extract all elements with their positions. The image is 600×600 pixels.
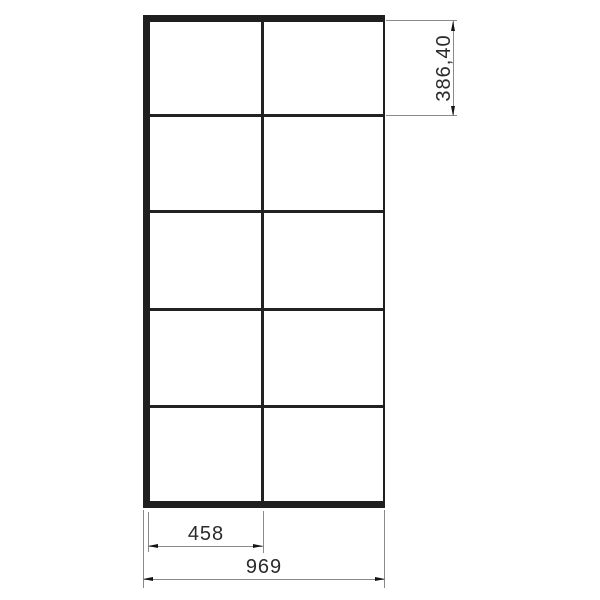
vertical-mullion — [261, 22, 264, 501]
cell-height-arrow-up-icon — [451, 21, 455, 31]
total-width-arrow-right-icon — [375, 577, 385, 581]
total-width-arrow-left-icon — [143, 577, 153, 581]
cell-height-extension-line-bottom — [386, 115, 457, 116]
horizontal-mullion-2 — [150, 210, 383, 213]
total-width-dimension-line — [143, 579, 385, 580]
horizontal-mullion-3 — [150, 308, 383, 311]
cell-height-extension-line-top — [386, 20, 457, 21]
drawing-canvas: 386,40 458 969 — [0, 0, 600, 600]
cell-height-arrow-down-icon — [451, 106, 455, 116]
frame-outline — [143, 15, 385, 508]
panel-width-arrow-left-icon — [148, 544, 158, 548]
panel-width-dimension-line — [148, 546, 263, 547]
panel-width-dimension-label: 458 — [188, 524, 224, 544]
panel-width-extension-line-right — [263, 511, 264, 553]
cell-height-dimension-label: 386,40 — [434, 34, 454, 101]
horizontal-mullion-1 — [150, 114, 383, 117]
panel-width-arrow-right-icon — [253, 544, 263, 548]
total-width-dimension-label: 969 — [246, 557, 282, 577]
horizontal-mullion-4 — [150, 405, 383, 408]
